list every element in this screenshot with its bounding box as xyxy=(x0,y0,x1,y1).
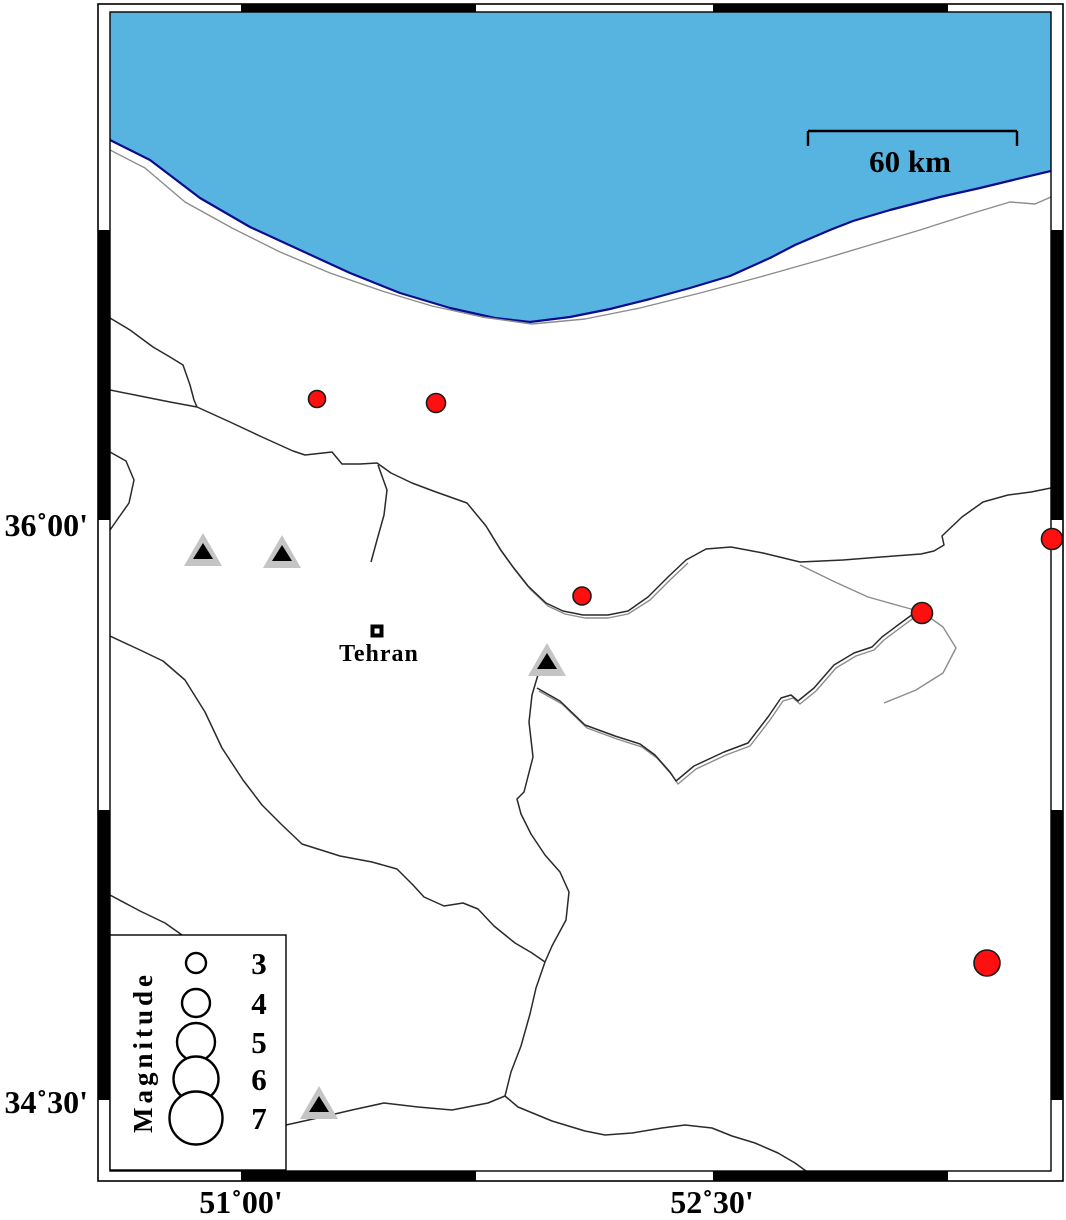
legend-circle-m7 xyxy=(170,1092,223,1145)
map-canvas: 36˚00' 34˚30' 51˚00' 52˚30' 60 km Tehran… xyxy=(0,0,1066,1220)
earthquake-epicenter xyxy=(912,603,933,624)
lat-label-36n00: 36˚00' xyxy=(4,507,88,543)
legend-label-m4: 4 xyxy=(251,986,267,1021)
earthquake-epicenter xyxy=(974,950,1000,976)
lon-label-52e30: 52˚30' xyxy=(670,1184,754,1220)
seismicity-map-window: 36˚00' 34˚30' 51˚00' 52˚30' 60 km Tehran… xyxy=(0,0,1066,1220)
lon-label-51e00: 51˚00' xyxy=(199,1184,283,1220)
earthquake-epicenter xyxy=(1042,529,1063,550)
legend-circle-m3 xyxy=(186,953,206,973)
scale-bar-label: 60 km xyxy=(869,144,951,179)
legend-circle-m4 xyxy=(182,989,210,1017)
legend-label-m7: 7 xyxy=(251,1101,267,1136)
earthquake-epicenter xyxy=(309,391,326,408)
frame-tick-right xyxy=(1051,230,1063,520)
frame-tick-bottom xyxy=(713,1171,948,1181)
city-marker-inner xyxy=(375,629,380,634)
frame-tick-bottom xyxy=(241,1171,476,1181)
legend-label-m6: 6 xyxy=(251,1062,267,1097)
frame-tick-left xyxy=(98,810,110,1100)
earthquake-epicenter xyxy=(427,394,446,413)
frame-tick-left xyxy=(98,230,110,520)
lat-label-34n30: 34˚30' xyxy=(4,1084,88,1120)
frame-tick-right xyxy=(1051,810,1063,1100)
earthquake-epicenter xyxy=(573,587,591,605)
city-label-tehran: Tehran xyxy=(339,641,419,667)
legend-label-m5: 5 xyxy=(251,1025,267,1060)
frame-tick-top xyxy=(713,4,948,12)
frame-tick-top xyxy=(241,4,476,12)
legend-title: Magnitude xyxy=(128,971,158,1133)
legend-label-m3: 3 xyxy=(251,946,267,981)
